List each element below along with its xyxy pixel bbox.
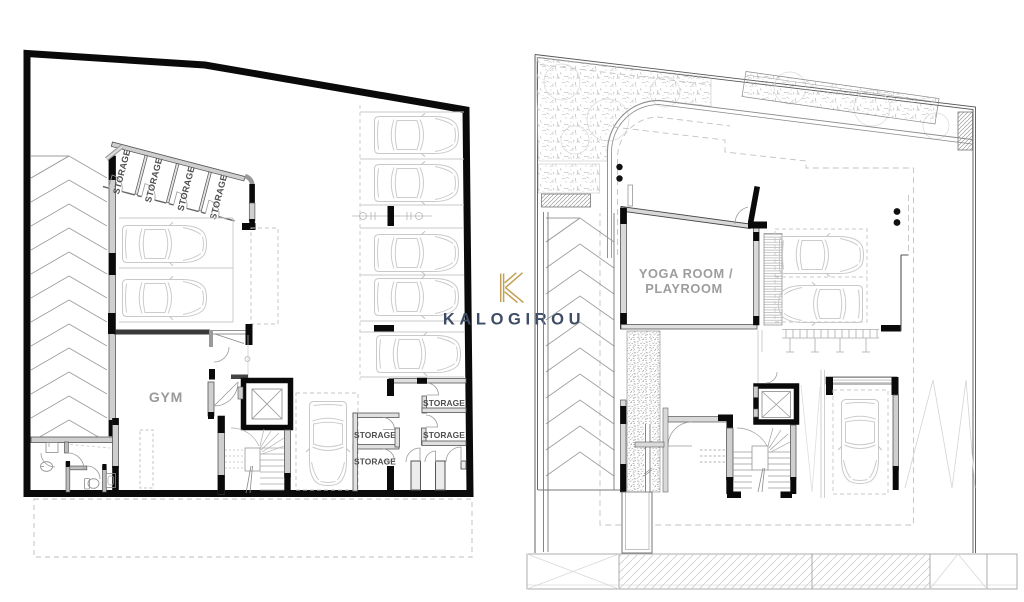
svg-text:YOGA ROOM /: YOGA ROOM / (639, 266, 733, 281)
svg-text:STORAGE: STORAGE (354, 430, 396, 440)
svg-text:GYM: GYM (149, 389, 183, 405)
svg-text:STORAGE: STORAGE (354, 457, 396, 467)
svg-text:STORAGE: STORAGE (423, 398, 465, 408)
svg-text:PLAYROOM: PLAYROOM (645, 281, 723, 296)
svg-text:STORAGE: STORAGE (423, 430, 465, 440)
svg-text:KALOGIROU: KALOGIROU (443, 311, 585, 329)
